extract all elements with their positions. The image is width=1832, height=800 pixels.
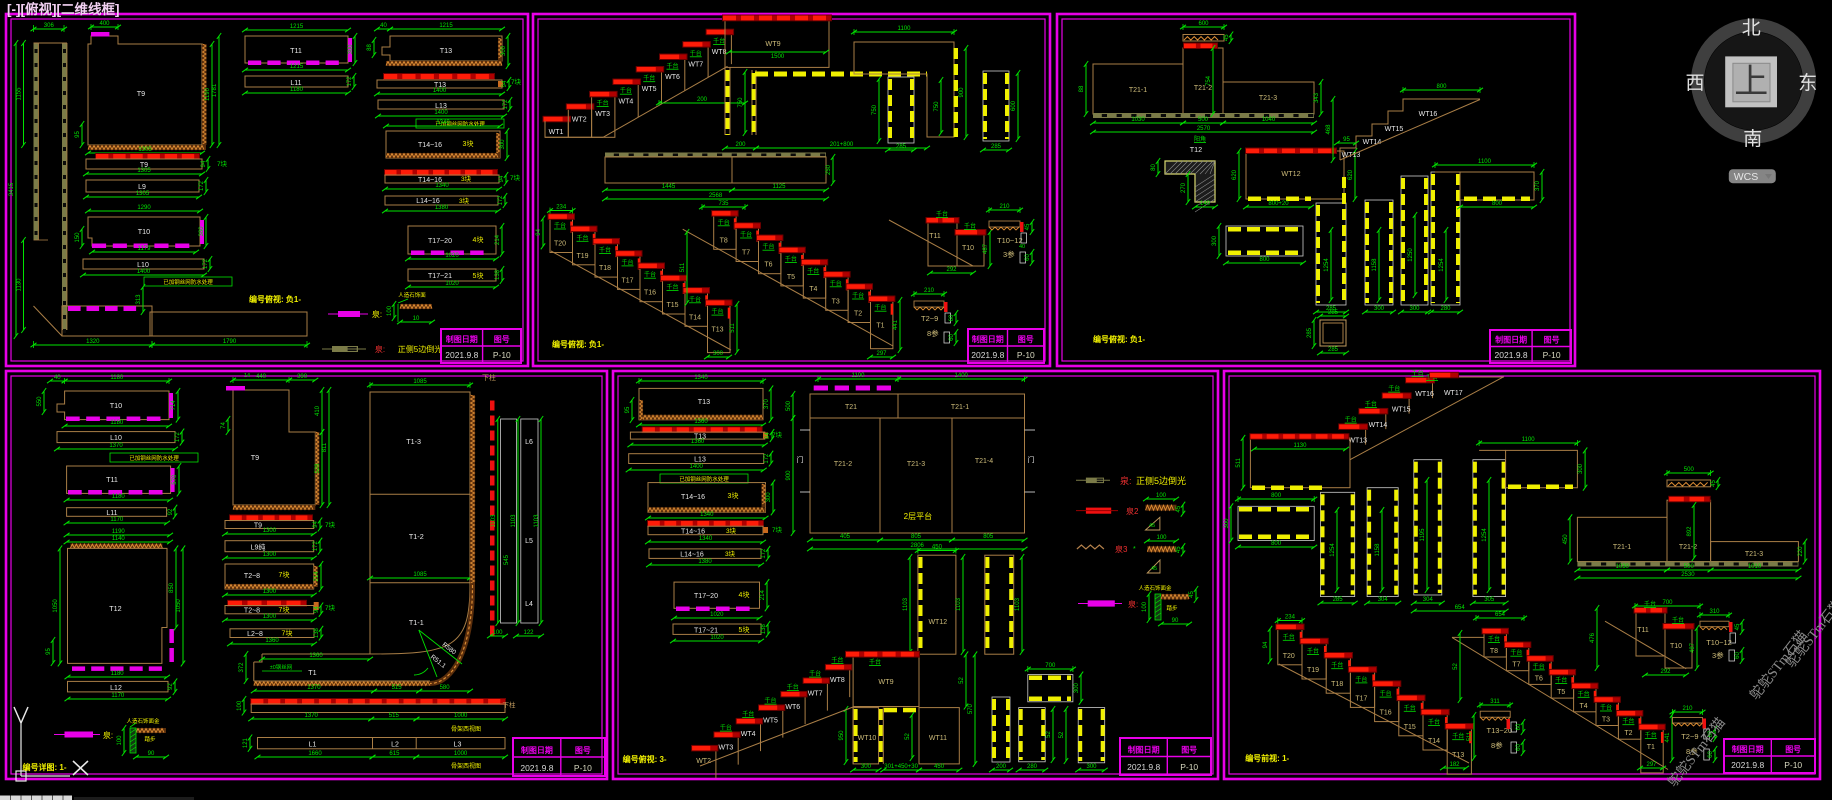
svg-text:T4: T4 bbox=[1580, 703, 1588, 710]
svg-text:T13: T13 bbox=[698, 397, 710, 406]
svg-text:T17: T17 bbox=[1355, 695, 1367, 702]
svg-text:千台: 千台 bbox=[1307, 647, 1319, 655]
svg-text:292: 292 bbox=[946, 267, 957, 273]
svg-text:3块: 3块 bbox=[461, 174, 472, 183]
svg-text:1400: 1400 bbox=[434, 110, 448, 116]
svg-text:千台: 千台 bbox=[1404, 704, 1416, 712]
svg-text:2530: 2530 bbox=[1681, 572, 1695, 578]
svg-text:811: 811 bbox=[322, 442, 328, 452]
svg-text:下柱: 下柱 bbox=[503, 700, 517, 709]
svg-text:40: 40 bbox=[380, 23, 387, 29]
svg-text:40: 40 bbox=[1019, 244, 1025, 250]
svg-text:WT14: WT14 bbox=[1363, 139, 1382, 146]
svg-text:WT5: WT5 bbox=[642, 86, 657, 93]
svg-text:1320: 1320 bbox=[86, 339, 100, 345]
svg-text:405: 405 bbox=[840, 534, 851, 540]
svg-text:编号详图: 1-: 编号详图: 1- bbox=[23, 762, 67, 772]
svg-text:511: 511 bbox=[730, 323, 736, 333]
svg-text:94: 94 bbox=[314, 606, 320, 613]
svg-text:T9: T9 bbox=[251, 453, 259, 462]
svg-text:343: 343 bbox=[1314, 92, 1320, 103]
svg-text:L10: L10 bbox=[110, 435, 122, 442]
svg-text:T16: T16 bbox=[1380, 710, 1392, 717]
svg-text:94: 94 bbox=[313, 521, 319, 528]
svg-text:7块: 7块 bbox=[511, 77, 522, 86]
svg-text:654: 654 bbox=[1495, 612, 1506, 618]
svg-text:千台: 千台 bbox=[1428, 718, 1440, 726]
svg-text:千台: 千台 bbox=[690, 49, 702, 57]
svg-text:5块: 5块 bbox=[473, 271, 484, 280]
svg-text:1445: 1445 bbox=[662, 184, 676, 190]
svg-text:WT4: WT4 bbox=[741, 731, 756, 738]
svg-text:7块: 7块 bbox=[279, 605, 290, 614]
svg-text:踏步: 踏步 bbox=[144, 735, 156, 743]
svg-text:285: 285 bbox=[1328, 310, 1339, 316]
svg-text:1400: 1400 bbox=[690, 464, 704, 470]
svg-text:1030: 1030 bbox=[1131, 117, 1145, 123]
svg-text:370: 370 bbox=[1535, 180, 1541, 191]
svg-text:L12: L12 bbox=[110, 685, 122, 692]
svg-text:7块: 7块 bbox=[325, 603, 336, 612]
svg-text:92: 92 bbox=[168, 508, 174, 515]
svg-text:千台: 千台 bbox=[809, 670, 821, 678]
svg-text:1360: 1360 bbox=[265, 638, 279, 644]
svg-text:人造石饰面金: 人造石饰面金 bbox=[126, 717, 160, 725]
svg-text:1180: 1180 bbox=[110, 420, 124, 426]
svg-text:201+800: 201+800 bbox=[830, 142, 854, 148]
svg-text:T9: T9 bbox=[254, 523, 262, 530]
svg-text:T10: T10 bbox=[110, 401, 122, 410]
svg-text:2021.9.8: 2021.9.8 bbox=[1495, 350, 1528, 360]
svg-text:172: 172 bbox=[761, 548, 767, 559]
svg-text:2021.9.8: 2021.9.8 bbox=[1127, 762, 1160, 772]
svg-text:1340: 1340 bbox=[699, 536, 713, 542]
svg-text:90: 90 bbox=[1172, 618, 1179, 624]
svg-text:千台: 千台 bbox=[1510, 649, 1522, 657]
svg-text:T6: T6 bbox=[1535, 675, 1543, 682]
svg-text:千台: 千台 bbox=[1555, 676, 1567, 684]
svg-text:45: 45 bbox=[1149, 523, 1155, 529]
svg-text:1254: 1254 bbox=[1330, 543, 1336, 557]
svg-text:T17: T17 bbox=[621, 277, 633, 284]
svg-text:750: 750 bbox=[872, 104, 878, 115]
svg-text:千台: 千台 bbox=[621, 258, 633, 266]
svg-text:714: 714 bbox=[171, 400, 177, 411]
svg-text:52: 52 bbox=[905, 733, 911, 740]
svg-text:3块: 3块 bbox=[459, 196, 470, 205]
svg-text:L9: L9 bbox=[138, 184, 146, 191]
svg-text:550: 550 bbox=[37, 396, 43, 407]
svg-text:40: 40 bbox=[54, 375, 61, 381]
svg-text:515: 515 bbox=[392, 685, 403, 691]
svg-text:L3: L3 bbox=[454, 742, 462, 749]
svg-text:泉:: 泉: bbox=[372, 309, 382, 319]
svg-text:L14~16: L14~16 bbox=[680, 552, 704, 559]
svg-text:1140: 1140 bbox=[112, 536, 126, 542]
svg-text:150: 150 bbox=[75, 232, 81, 243]
svg-text:3块: 3块 bbox=[463, 139, 474, 148]
svg-text:60: 60 bbox=[1735, 652, 1741, 659]
svg-text:210: 210 bbox=[999, 204, 1010, 210]
svg-text:WT7: WT7 bbox=[688, 61, 703, 68]
svg-text:300: 300 bbox=[1212, 235, 1218, 246]
svg-text:1158: 1158 bbox=[1375, 543, 1381, 557]
svg-text:1100: 1100 bbox=[898, 26, 912, 32]
svg-text:1380: 1380 bbox=[698, 559, 712, 565]
svg-text:304: 304 bbox=[1378, 597, 1389, 603]
svg-text:泉2: 泉2 bbox=[1126, 506, 1139, 516]
svg-text:500: 500 bbox=[1684, 564, 1695, 570]
svg-text:千台: 千台 bbox=[620, 87, 632, 95]
svg-text:正侧5边倒光: 正侧5边倒光 bbox=[1136, 475, 1186, 486]
svg-text:300: 300 bbox=[1086, 764, 1097, 770]
svg-text:301+450+30: 301+450+30 bbox=[884, 764, 918, 770]
svg-text:1290: 1290 bbox=[137, 205, 151, 211]
svg-text:1100: 1100 bbox=[1478, 159, 1492, 165]
svg-text:95: 95 bbox=[1343, 137, 1350, 143]
svg-text:千台: 千台 bbox=[1578, 690, 1590, 698]
svg-text:千台: 千台 bbox=[1412, 369, 1424, 377]
svg-text:人造石饰面金: 人造石饰面金 bbox=[1138, 584, 1172, 592]
svg-text:P-10: P-10 bbox=[574, 763, 592, 773]
svg-text:441: 441 bbox=[1665, 732, 1671, 743]
svg-text:泉:: 泉: bbox=[1120, 475, 1132, 486]
svg-text:172: 172 bbox=[203, 258, 209, 269]
svg-text:T21-2: T21-2 bbox=[834, 461, 852, 468]
svg-text:WT6: WT6 bbox=[785, 704, 800, 711]
svg-text:1305: 1305 bbox=[136, 191, 150, 197]
svg-text:1125: 1125 bbox=[773, 184, 787, 190]
svg-text:WT8: WT8 bbox=[830, 677, 845, 684]
svg-text:WT5: WT5 bbox=[763, 718, 778, 725]
svg-text:千台: 千台 bbox=[1622, 717, 1634, 725]
svg-text:L11: L11 bbox=[106, 510, 117, 517]
svg-text:1050: 1050 bbox=[53, 599, 59, 613]
svg-text:骨架西视图: 骨架西视图 bbox=[451, 762, 481, 770]
svg-text:东: 东 bbox=[1798, 72, 1817, 94]
svg-text:3参: 3参 bbox=[1712, 650, 1724, 660]
svg-text:476: 476 bbox=[1590, 632, 1596, 643]
svg-text:45: 45 bbox=[1176, 546, 1182, 553]
svg-text:1781: 1781 bbox=[212, 83, 218, 97]
svg-text:WT16: WT16 bbox=[1419, 111, 1438, 118]
svg-text:214: 214 bbox=[760, 590, 766, 601]
svg-text:千台: 千台 bbox=[713, 37, 725, 45]
svg-text:千台: 千台 bbox=[644, 271, 656, 279]
svg-text:100: 100 bbox=[492, 630, 503, 636]
svg-text:WT8: WT8 bbox=[712, 49, 727, 56]
svg-text:T21-1: T21-1 bbox=[1129, 87, 1147, 94]
svg-text:T10: T10 bbox=[1670, 643, 1682, 650]
svg-text:300: 300 bbox=[1374, 306, 1385, 312]
svg-text:1000: 1000 bbox=[454, 713, 468, 719]
svg-text:285: 285 bbox=[896, 144, 907, 150]
svg-text:1305: 1305 bbox=[137, 168, 151, 174]
svg-text:90: 90 bbox=[148, 751, 155, 757]
svg-text:T2~8: T2~8 bbox=[244, 573, 260, 580]
svg-text:制图日期: 制图日期 bbox=[1128, 745, 1160, 755]
svg-text:94: 94 bbox=[201, 160, 207, 167]
svg-text:T5: T5 bbox=[1557, 689, 1565, 696]
svg-text:WT2: WT2 bbox=[696, 758, 711, 765]
svg-text:450: 450 bbox=[932, 545, 943, 551]
svg-text:297: 297 bbox=[876, 351, 887, 357]
svg-text:487: 487 bbox=[983, 243, 989, 254]
svg-text:1103: 1103 bbox=[491, 514, 497, 528]
svg-text:805: 805 bbox=[983, 534, 994, 540]
svg-text:T1-2: T1-2 bbox=[409, 532, 424, 541]
svg-text:T9: T9 bbox=[137, 89, 145, 98]
svg-text:千台: 千台 bbox=[1645, 731, 1657, 739]
svg-text:60: 60 bbox=[1708, 751, 1714, 758]
svg-text:千台: 千台 bbox=[1380, 690, 1392, 698]
svg-text:1158: 1158 bbox=[1372, 258, 1378, 272]
svg-text:285: 285 bbox=[1328, 347, 1339, 353]
svg-text:已加钢丝网防水处理: 已加钢丝网防水处理 bbox=[679, 475, 729, 483]
svg-text:220: 220 bbox=[1798, 546, 1804, 557]
svg-text:1103: 1103 bbox=[511, 514, 517, 528]
svg-text:450: 450 bbox=[1563, 534, 1569, 545]
svg-text:500: 500 bbox=[786, 400, 792, 411]
svg-text:1500: 1500 bbox=[771, 54, 785, 60]
svg-text:WT4: WT4 bbox=[619, 99, 634, 106]
svg-text:1254: 1254 bbox=[1482, 528, 1488, 542]
svg-text:1179: 1179 bbox=[138, 246, 152, 252]
svg-text:45: 45 bbox=[1711, 480, 1717, 487]
svg-text:编号俯视: 3-: 编号俯视: 3- bbox=[623, 754, 667, 764]
svg-text:80: 80 bbox=[1151, 164, 1157, 171]
svg-text:T21-3: T21-3 bbox=[1259, 95, 1277, 102]
svg-text:214: 214 bbox=[495, 234, 501, 245]
svg-text:T1-1: T1-1 bbox=[409, 618, 424, 627]
svg-text:千台: 千台 bbox=[1365, 400, 1377, 408]
svg-text:千台: 千台 bbox=[718, 218, 730, 226]
svg-text:千台: 千台 bbox=[1488, 635, 1500, 643]
svg-text:千台: 千台 bbox=[807, 267, 819, 275]
svg-text:138: 138 bbox=[495, 269, 501, 280]
svg-text:T21-3: T21-3 bbox=[907, 461, 925, 468]
svg-text:1790: 1790 bbox=[223, 339, 237, 345]
svg-text:654: 654 bbox=[1455, 605, 1466, 611]
svg-text:1180: 1180 bbox=[111, 671, 125, 677]
svg-text:T12: T12 bbox=[1190, 145, 1202, 154]
svg-text:200: 200 bbox=[996, 764, 1007, 770]
svg-text:8参: 8参 bbox=[1491, 740, 1503, 750]
svg-text:T10: T10 bbox=[138, 227, 150, 236]
svg-text:172: 172 bbox=[347, 76, 353, 87]
svg-text:372: 372 bbox=[239, 662, 245, 673]
svg-text:580: 580 bbox=[440, 685, 451, 691]
svg-text:千台: 千台 bbox=[689, 295, 701, 303]
svg-text:L10: L10 bbox=[137, 262, 149, 269]
svg-text:L9纯: L9纯 bbox=[251, 543, 266, 552]
svg-text:7块: 7块 bbox=[772, 525, 783, 534]
svg-text:511: 511 bbox=[1467, 731, 1473, 741]
svg-text:千台: 千台 bbox=[1452, 732, 1464, 740]
svg-text:L1: L1 bbox=[309, 742, 317, 749]
svg-text:T10: T10 bbox=[962, 245, 974, 252]
svg-text:4块: 4块 bbox=[473, 235, 484, 244]
svg-text:千台: 千台 bbox=[964, 222, 976, 230]
svg-text:311: 311 bbox=[1490, 699, 1500, 705]
svg-text:制图日期: 制图日期 bbox=[446, 334, 478, 344]
svg-text:千台: 千台 bbox=[785, 255, 797, 263]
svg-text:94: 94 bbox=[499, 175, 505, 182]
svg-text:制图日期: 制图日期 bbox=[521, 745, 553, 755]
svg-text:200: 200 bbox=[697, 97, 708, 103]
svg-text:WT1: WT1 bbox=[549, 129, 564, 136]
svg-text:850: 850 bbox=[169, 582, 175, 593]
svg-text:WT10: WT10 bbox=[858, 735, 877, 742]
svg-text:千台: 千台 bbox=[742, 710, 754, 718]
svg-text:1340: 1340 bbox=[436, 120, 450, 126]
svg-text:100: 100 bbox=[387, 305, 393, 316]
svg-text:3415: 3415 bbox=[9, 182, 15, 196]
svg-text:182: 182 bbox=[1449, 762, 1460, 768]
svg-text:T7: T7 bbox=[742, 250, 750, 257]
svg-text:图号: 图号 bbox=[575, 746, 591, 755]
svg-text:300: 300 bbox=[861, 764, 872, 770]
svg-text:1215: 1215 bbox=[439, 23, 453, 29]
svg-text:T10~12: T10~12 bbox=[1706, 638, 1732, 647]
svg-text:214: 214 bbox=[314, 571, 320, 582]
svg-text:3参: 3参 bbox=[1003, 249, 1015, 259]
svg-text:T8: T8 bbox=[720, 237, 728, 244]
svg-text:5块: 5块 bbox=[739, 625, 750, 634]
svg-text:88: 88 bbox=[367, 44, 373, 51]
svg-text:500: 500 bbox=[1684, 467, 1695, 473]
svg-text:T18: T18 bbox=[599, 265, 611, 272]
svg-text:310: 310 bbox=[1709, 609, 1720, 615]
svg-text:121: 121 bbox=[243, 737, 249, 748]
svg-text:10: 10 bbox=[413, 316, 420, 322]
svg-text:千台: 千台 bbox=[869, 658, 881, 666]
svg-text:45: 45 bbox=[1189, 591, 1195, 598]
svg-text:T14~16: T14~16 bbox=[681, 494, 705, 501]
svg-text:210: 210 bbox=[1682, 706, 1693, 712]
svg-text:172: 172 bbox=[503, 99, 509, 110]
svg-text:1215: 1215 bbox=[290, 64, 304, 70]
svg-text:P-10: P-10 bbox=[1180, 762, 1198, 772]
svg-text:编号俯视: 负1-: 编号俯视: 负1- bbox=[552, 339, 604, 349]
svg-text:950: 950 bbox=[839, 730, 845, 741]
svg-text:1100: 1100 bbox=[1522, 437, 1536, 443]
svg-text:1180: 1180 bbox=[110, 375, 124, 381]
svg-text:千台: 千台 bbox=[711, 308, 723, 316]
svg-text:7块: 7块 bbox=[282, 629, 293, 638]
svg-text:L5: L5 bbox=[525, 538, 533, 545]
svg-text:1020: 1020 bbox=[710, 635, 724, 641]
svg-text:545: 545 bbox=[504, 554, 510, 565]
svg-text:泉3: 泉3 bbox=[1115, 544, 1128, 554]
svg-text:750: 750 bbox=[934, 101, 940, 112]
svg-text:千台: 千台 bbox=[830, 279, 842, 287]
svg-text:52: 52 bbox=[1453, 663, 1459, 670]
svg-text:7块: 7块 bbox=[217, 159, 228, 168]
svg-text:门: 门 bbox=[797, 455, 804, 464]
svg-text:280: 280 bbox=[1027, 764, 1038, 770]
svg-text:60: 60 bbox=[949, 314, 955, 321]
svg-text:千台: 千台 bbox=[787, 683, 799, 691]
svg-text:编号俯视: 负1-: 编号俯视: 负1- bbox=[249, 294, 301, 304]
svg-text:千台: 千台 bbox=[599, 246, 611, 254]
svg-text:45: 45 bbox=[1176, 505, 1182, 512]
svg-text:L14~16: L14~16 bbox=[416, 198, 440, 205]
svg-text:L13: L13 bbox=[435, 103, 447, 110]
svg-text:T13: T13 bbox=[711, 327, 723, 334]
svg-text:95: 95 bbox=[75, 131, 81, 138]
svg-text:1360: 1360 bbox=[309, 653, 323, 659]
svg-text:千台: 千台 bbox=[1388, 385, 1400, 393]
svg-text:7块: 7块 bbox=[279, 570, 290, 579]
svg-text:千台: 千台 bbox=[643, 74, 655, 82]
svg-text:172: 172 bbox=[764, 453, 770, 464]
svg-text:234: 234 bbox=[556, 205, 567, 211]
svg-text:图号: 图号 bbox=[1181, 746, 1197, 755]
svg-text:515: 515 bbox=[389, 713, 400, 719]
svg-text:390: 390 bbox=[297, 374, 308, 380]
svg-text:1340: 1340 bbox=[700, 512, 714, 518]
svg-text:千台: 千台 bbox=[1331, 661, 1343, 669]
svg-text:234: 234 bbox=[1285, 615, 1296, 621]
svg-text:297: 297 bbox=[1646, 762, 1657, 768]
svg-text:3块: 3块 bbox=[728, 491, 739, 500]
svg-text:1020: 1020 bbox=[710, 612, 724, 618]
svg-text:300: 300 bbox=[500, 139, 506, 150]
svg-text:1250: 1250 bbox=[1408, 248, 1414, 262]
svg-text:千台: 千台 bbox=[1355, 675, 1367, 683]
svg-text:T17~20: T17~20 bbox=[428, 238, 452, 245]
svg-text:T2~8: T2~8 bbox=[244, 608, 260, 615]
svg-text:泉:: 泉: bbox=[375, 344, 385, 354]
svg-text:280: 280 bbox=[1440, 306, 1451, 312]
svg-text:门: 门 bbox=[1028, 455, 1035, 464]
svg-text:WT12: WT12 bbox=[1281, 169, 1300, 178]
svg-text:1085: 1085 bbox=[413, 572, 427, 578]
svg-text:T11: T11 bbox=[290, 46, 302, 55]
svg-text:1370: 1370 bbox=[305, 713, 319, 719]
svg-text:1103: 1103 bbox=[903, 597, 909, 611]
svg-text:570: 570 bbox=[968, 703, 974, 714]
svg-text:T1-3: T1-3 bbox=[406, 437, 421, 446]
svg-text:1020: 1020 bbox=[445, 253, 459, 259]
svg-text:400: 400 bbox=[99, 21, 110, 27]
svg-text:511: 511 bbox=[1236, 457, 1242, 467]
svg-text:410: 410 bbox=[315, 405, 321, 416]
svg-text:WT2: WT2 bbox=[572, 117, 587, 124]
svg-text:95: 95 bbox=[46, 648, 52, 655]
svg-text:74: 74 bbox=[221, 422, 227, 429]
svg-text:T16: T16 bbox=[644, 290, 656, 297]
svg-text:800: 800 bbox=[1259, 257, 1270, 263]
svg-text:1254: 1254 bbox=[1324, 258, 1330, 272]
svg-text:T21-1: T21-1 bbox=[1613, 544, 1631, 551]
svg-text:L2: L2 bbox=[391, 742, 399, 749]
svg-text:T20: T20 bbox=[1283, 653, 1295, 660]
svg-text:1190: 1190 bbox=[112, 529, 126, 535]
svg-text:泉:: 泉: bbox=[103, 730, 113, 740]
svg-text:T14: T14 bbox=[689, 314, 701, 321]
svg-text:450: 450 bbox=[934, 764, 945, 770]
svg-text:T14~16: T14~16 bbox=[418, 142, 442, 149]
svg-text:1170: 1170 bbox=[111, 693, 125, 699]
svg-text:1340: 1340 bbox=[435, 183, 449, 189]
svg-text:T17~21: T17~21 bbox=[694, 628, 718, 635]
svg-text:L6: L6 bbox=[525, 439, 533, 446]
svg-text:500: 500 bbox=[1198, 117, 1209, 123]
svg-text:800: 800 bbox=[1271, 493, 1282, 499]
svg-text:440: 440 bbox=[256, 374, 267, 380]
